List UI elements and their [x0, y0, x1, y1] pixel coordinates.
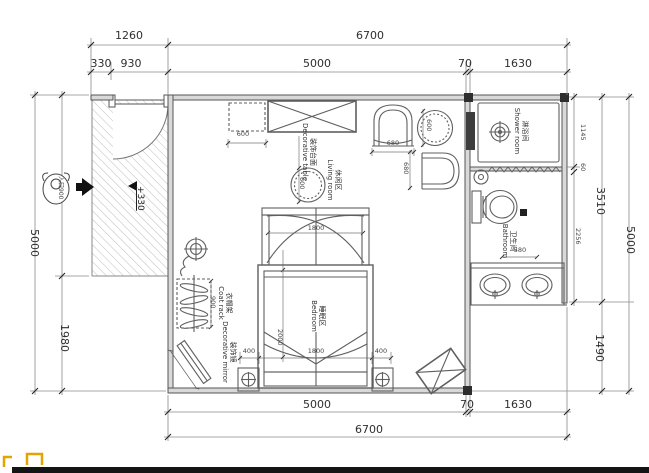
- dim-left-5000: 5000: [28, 229, 40, 257]
- room-label-bedroom: 睡眠区 Bedroom: [310, 290, 326, 342]
- dim-nightstand-400-right: 400: [371, 348, 391, 355]
- dim-right-1490: 1490: [593, 334, 605, 362]
- room-label-shower-cn: 淋浴间: [521, 103, 529, 159]
- level-marker: +330: [134, 186, 146, 211]
- dim-top-1260: 1260: [109, 30, 149, 42]
- room-label-bedroom-en: Bedroom: [310, 290, 318, 342]
- decorative-mirror: [167, 339, 212, 391]
- dim-bed-1800: 1800: [303, 348, 329, 355]
- paper-holder: [474, 170, 488, 184]
- floor-plan: 1260 6700 330 930 5000 70 1630 5000 70 1…: [0, 0, 649, 473]
- dim-top-6700: 6700: [350, 30, 390, 42]
- dim-coat-rack-900: 900: [209, 296, 216, 308]
- watermark-fragment: [4, 454, 42, 467]
- cabinet: [229, 103, 265, 131]
- dim-right-5000: 5000: [624, 226, 636, 254]
- dim-top-5000: 5000: [297, 58, 337, 70]
- dim-top-330: 330: [87, 58, 115, 70]
- coat-rack: [177, 275, 211, 332]
- dim-side-table-600: 600: [425, 119, 432, 131]
- floor-drain: [520, 209, 527, 216]
- dim-nightstand-400-left: 400: [239, 348, 259, 355]
- bottom-bar: [12, 467, 649, 473]
- room-label-shower: 淋浴间 Shower room: [513, 103, 529, 159]
- dim-bottom-1630: 1630: [498, 399, 538, 411]
- crossed-box: [416, 348, 465, 393]
- label-decorative-table: 装饰台面 Decorative table: [301, 122, 317, 182]
- ceiling-light: [181, 237, 208, 276]
- dim-left-1980: 1980: [58, 324, 70, 352]
- dim-bottom-70: 70: [455, 399, 479, 411]
- dim-bottom-5000: 5000: [297, 399, 337, 411]
- dim-right-2256: 2256: [574, 228, 581, 245]
- room-label-living-cn: 休闲区: [334, 152, 342, 208]
- room-label-bathroom-cn: 卫生间: [509, 215, 517, 267]
- entry-label: 入口900: [54, 176, 66, 199]
- bed-canopy: [262, 208, 369, 265]
- entry-arrow-icon: [76, 178, 94, 196]
- dim-bed-2000: 2000: [276, 329, 283, 346]
- shower-door: [466, 112, 475, 150]
- dim-top-1630: 1630: [498, 58, 538, 70]
- dim-chair-680-w: 680: [383, 140, 403, 147]
- armchair-2: [422, 153, 459, 189]
- vanity: [471, 263, 564, 305]
- dim-chair-680-h: 680: [402, 162, 409, 174]
- dim-bottom-6700: 6700: [349, 424, 389, 436]
- dim-cabinet-600: 600: [233, 131, 253, 138]
- dim-right-1145: 1145: [579, 124, 586, 141]
- dim-top-70: 70: [453, 58, 477, 70]
- dim-right-3510: 3510: [594, 187, 606, 215]
- dim-right-60: 60: [579, 163, 586, 171]
- room-label-bathroom: 卫生间 Bathroom: [501, 215, 517, 267]
- room-label-living-en: Living room: [326, 152, 334, 208]
- label-decorative-table-cn: 装饰台面: [309, 122, 317, 182]
- dim-top-930: 930: [117, 58, 145, 70]
- label-mirror-en: Decorative mirror: [221, 319, 229, 385]
- label-mirror: 装饰镜 Decorative mirror: [221, 319, 237, 385]
- porch-deck: [92, 95, 170, 276]
- room-label-living: 休闲区 Living room: [326, 152, 342, 208]
- room-label-bathroom-en: Bathroom: [501, 215, 509, 267]
- interior-dimensions: [211, 109, 537, 364]
- dim-canopy-1800: 1800: [303, 225, 329, 232]
- label-decorative-table-en: Decorative table: [301, 122, 309, 182]
- label-mirror-cn: 装饰镜: [229, 319, 237, 385]
- room-label-shower-en: Shower room: [513, 103, 521, 159]
- room-label-bedroom-cn: 睡眠区: [318, 290, 326, 342]
